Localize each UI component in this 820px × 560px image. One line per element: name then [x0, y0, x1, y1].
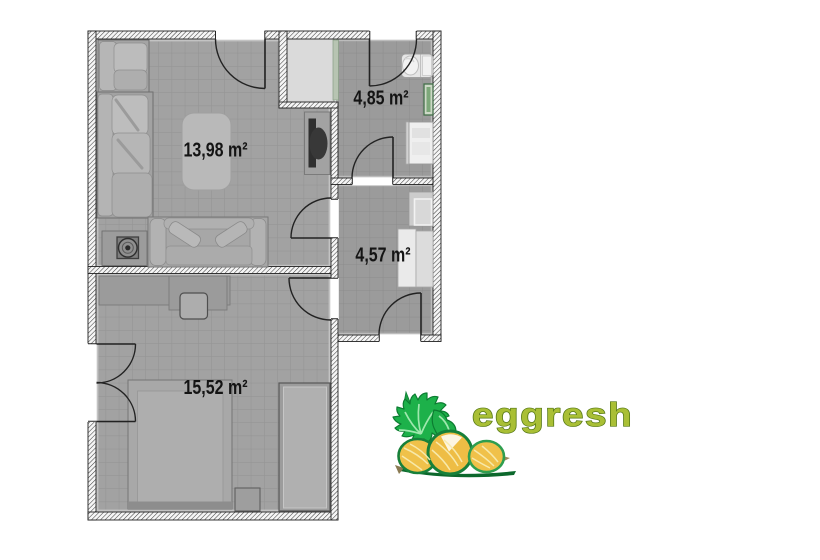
svg-text:4,57 m²: 4,57 m²: [355, 244, 410, 266]
svg-text:13,98 m²: 13,98 m²: [183, 139, 247, 161]
svg-text:eggresh: eggresh: [472, 397, 633, 434]
svg-text:4,85 m²: 4,85 m²: [353, 87, 408, 109]
svg-text:15,52 m²: 15,52 m²: [183, 376, 247, 398]
